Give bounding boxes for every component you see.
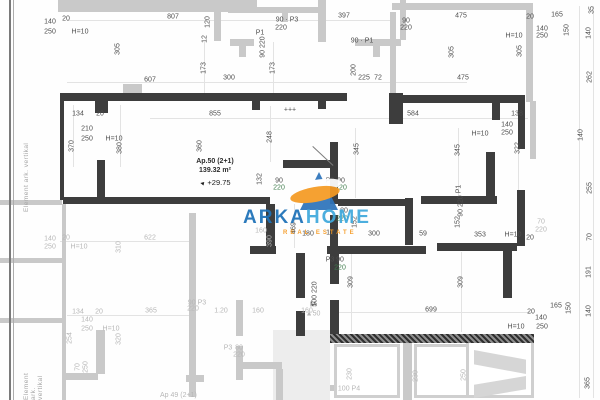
side-annotation: Element ark. vertikal [23,122,30,212]
dimension-label: 262 [587,71,594,83]
brand-wordmark: ARKAHOME [243,208,371,227]
dimension-label: 160 [252,308,264,315]
dimension-label: 134 [72,111,84,118]
dimension-label: 59 [419,231,427,238]
apartment-below-label: Ap 49 (2+1) [160,392,197,399]
dimension-label: 140 [501,122,513,129]
dimension-label: H=10 [103,326,120,333]
wall-segment [398,95,525,103]
dimension-label: 70 [587,233,594,241]
dimension-label: 305 [517,45,524,57]
dimension-label: 20 [62,16,70,23]
dimension-label: 370 [69,140,76,152]
apartment-area: 139.32 m² [183,166,247,175]
adjacent-wall-segment [390,12,396,93]
dimension-label: 140 [535,315,547,322]
dimension-line [150,118,528,119]
dimension-label: 20 [527,309,535,316]
dimension-label: 309 [348,276,355,288]
dimension-label: 225 [358,75,370,82]
dimension-label: 322 [515,142,522,154]
adjacent-wall-segment [96,330,105,374]
dimension-label: 140 [586,27,593,39]
wall-segment [327,246,426,254]
hatched-wall-segment [330,334,534,343]
dimension-label: 140 [586,305,593,317]
dimension-label: 173 [270,62,277,74]
dimension-label: P1 [456,185,463,194]
arkahome-watermark: ARKAHOME REAL ESTATE [243,160,375,240]
wall-segment [63,197,270,204]
dimension-label: 250 [461,369,468,381]
dimension-label: 100 P4 [338,386,360,393]
dimension-label: 20 [526,235,534,242]
dimension-label: 140 [44,236,56,243]
dimension-label: H=10 [508,324,525,331]
dimension-label: 165 [550,303,562,310]
dimension-label: 134 [72,309,84,316]
dimension-label: 220 [187,306,199,313]
dimension-line [60,241,190,242]
dimension-label: 12 [202,35,209,43]
wall-segment [486,152,495,199]
dimension-label: H=10 [472,131,489,138]
dimension-line [67,82,467,83]
adjacent-wall-segment [230,39,254,46]
dimension-label: 90 · P1 [351,38,374,45]
dimension-label: 35 [589,6,596,14]
dimension-label: 320 [116,333,123,345]
dimension-label: 230 [413,370,420,382]
dimension-line [67,20,392,21]
adjacent-wall-segment [403,340,412,400]
apartment-label: Ap.50 (2+1) 139.32 m² ◄+29.75 [183,157,247,187]
dimension-label: 140 [44,19,56,26]
wall-segment [503,251,512,298]
dimension-label: 380 [117,142,124,154]
dimension-label: 191 [586,266,593,278]
dimension-label: 150 [566,302,573,314]
adjacent-wall-segment [123,84,142,93]
dimension-label: 345 [455,144,462,156]
adjacent-wall-segment [276,369,283,400]
dimension-label: 200 [351,64,358,76]
dimension-label: 345 [354,143,361,155]
dimension-label: 254 [67,332,74,344]
dimension-label: 138 [511,111,523,118]
dimension-label: H=10 [506,33,523,40]
dimension-label: H=10 [72,29,89,36]
dimension-label: 220 [535,227,547,234]
wall-segment [492,103,500,120]
dimension-line [593,6,594,398]
dimension-label: 220 [400,25,412,32]
dimension-label: 90 · P3 [276,17,299,24]
dimension-label: 305 [115,43,122,55]
dimension-label: ▲50 [306,311,321,318]
wall-segment [437,243,517,251]
dimension-label: 140 [536,26,548,33]
adjacent-wall-segment [214,0,221,41]
elevation-value: +29.75 [207,178,230,187]
wall-segment [318,101,326,109]
dimension-label: 210 [81,126,93,133]
dimension-label: 250 [81,136,93,143]
dimension-line [351,252,352,332]
brand-arka: ARKA [243,207,306,228]
dimension-label: 353 [474,232,486,239]
apartment-name: Ap.50 (2+1) [183,157,247,166]
wall-segment [296,311,305,336]
dimension-label: 72 [374,75,382,82]
dimension-label: 90 [336,257,344,264]
dimension-label: H=10 [505,232,522,239]
dimension-label: 300 [223,75,235,82]
dimension-label: 20 [526,14,534,21]
dimension-label: 255 [587,182,594,194]
dimension-label: 220 [233,352,245,359]
adjacent-wall-segment [239,46,246,57]
adjacent-wall-segment [530,101,536,159]
dimension-label: 305 [449,46,456,58]
dimension-label: 250 [44,29,56,36]
wall-segment [330,300,339,336]
dimension-label: 220 [334,265,346,272]
dimension-label: 310 [116,241,123,253]
dimension-label: 165 [551,12,563,19]
dimension-label: P3 [224,345,233,352]
adjacent-wall-segment [250,0,257,8]
dimension-label: 250 [536,33,548,40]
dimension-label: P3 [326,257,335,264]
dimension-label: 20 [62,235,70,242]
adjacent-wall-segment [236,300,243,336]
dimension-label: 220 [275,25,287,32]
adjacent-wall-segment [62,204,66,400]
dimension-label: H=10 [71,244,88,251]
dimension-label: 152 [455,216,462,228]
elevation-flag-icon: ◄ [199,180,206,187]
dimension-label: 250 [81,326,93,333]
wall-segment [250,246,276,254]
elevation-marker: ◄+29.75 [183,178,247,187]
adjacent-wall-segment [62,373,98,380]
dimension-label: 365 [585,377,592,389]
adjacent-wall-segment [228,7,319,13]
dimension-line [579,6,580,398]
wall-segment [60,101,64,200]
dimension-label: 90 220 [260,36,267,57]
dimension-label: 365 [145,308,157,315]
dimension-label: 360 [197,140,204,152]
wall-segment [97,160,105,198]
wall-segment [296,253,305,298]
dimension-label: 807 [167,14,179,21]
dimension-label: 622 [144,235,156,242]
dimension-label: 70 [537,219,545,226]
adjacent-wall-segment [318,0,326,42]
dimension-label: 855 [209,111,221,118]
dimension-label: 699 [425,307,437,314]
dimension-label: 90 [402,18,410,25]
dimension-label: 70 [75,363,82,371]
section-line [9,0,11,400]
adjacent-wall-segment [392,3,532,10]
dimension-line [461,252,462,332]
adjacent-wall-segment [236,362,282,369]
adjacent-wall-segment [373,46,380,57]
dimension-label: 80 [235,345,243,352]
dimension-label: 397 [338,13,350,20]
dimension-label: 173 [201,62,208,74]
dimension-label: 475 [457,75,469,82]
dimension-label: 230 [347,368,354,380]
dimension-label: 250 [536,324,548,331]
dimension-label: 250 [83,361,90,373]
wall-segment [60,93,347,101]
dimension-label: 309 [458,276,465,288]
dimension-label: 120 [205,16,212,28]
side-annotation-partial: Element ark. vertikal [23,368,44,400]
dimension-label: 475 [455,13,467,20]
section-line-secondary [13,0,14,400]
adjacent-wall-segment [58,0,252,12]
dimension-label: 140 [81,317,93,324]
brand-tagline: REAL ESTATE [283,230,357,236]
dimension-label: +++ [284,107,296,114]
dimension-label: 250 [501,130,513,137]
dimension-label: 607 [144,77,156,84]
brand-home: HOME [306,207,371,228]
dimension-label: 150 [564,24,571,36]
dimension-label: 248 [267,131,274,143]
dimension-label: 20 [96,111,104,118]
dimension-label: 250 [44,244,56,251]
dimension-label: 90 220 [458,195,465,216]
wall-segment [252,101,260,110]
dimension-label: 584 [407,111,419,118]
floor-plan-screen: 14025020H=1080730560712012P190 22090 · P… [0,0,600,400]
dimension-label: 1.20 [214,308,228,315]
adjacent-wall-segment [186,375,204,382]
dimension-label: 140 [578,129,585,141]
dimension-label: 20 [95,309,103,316]
